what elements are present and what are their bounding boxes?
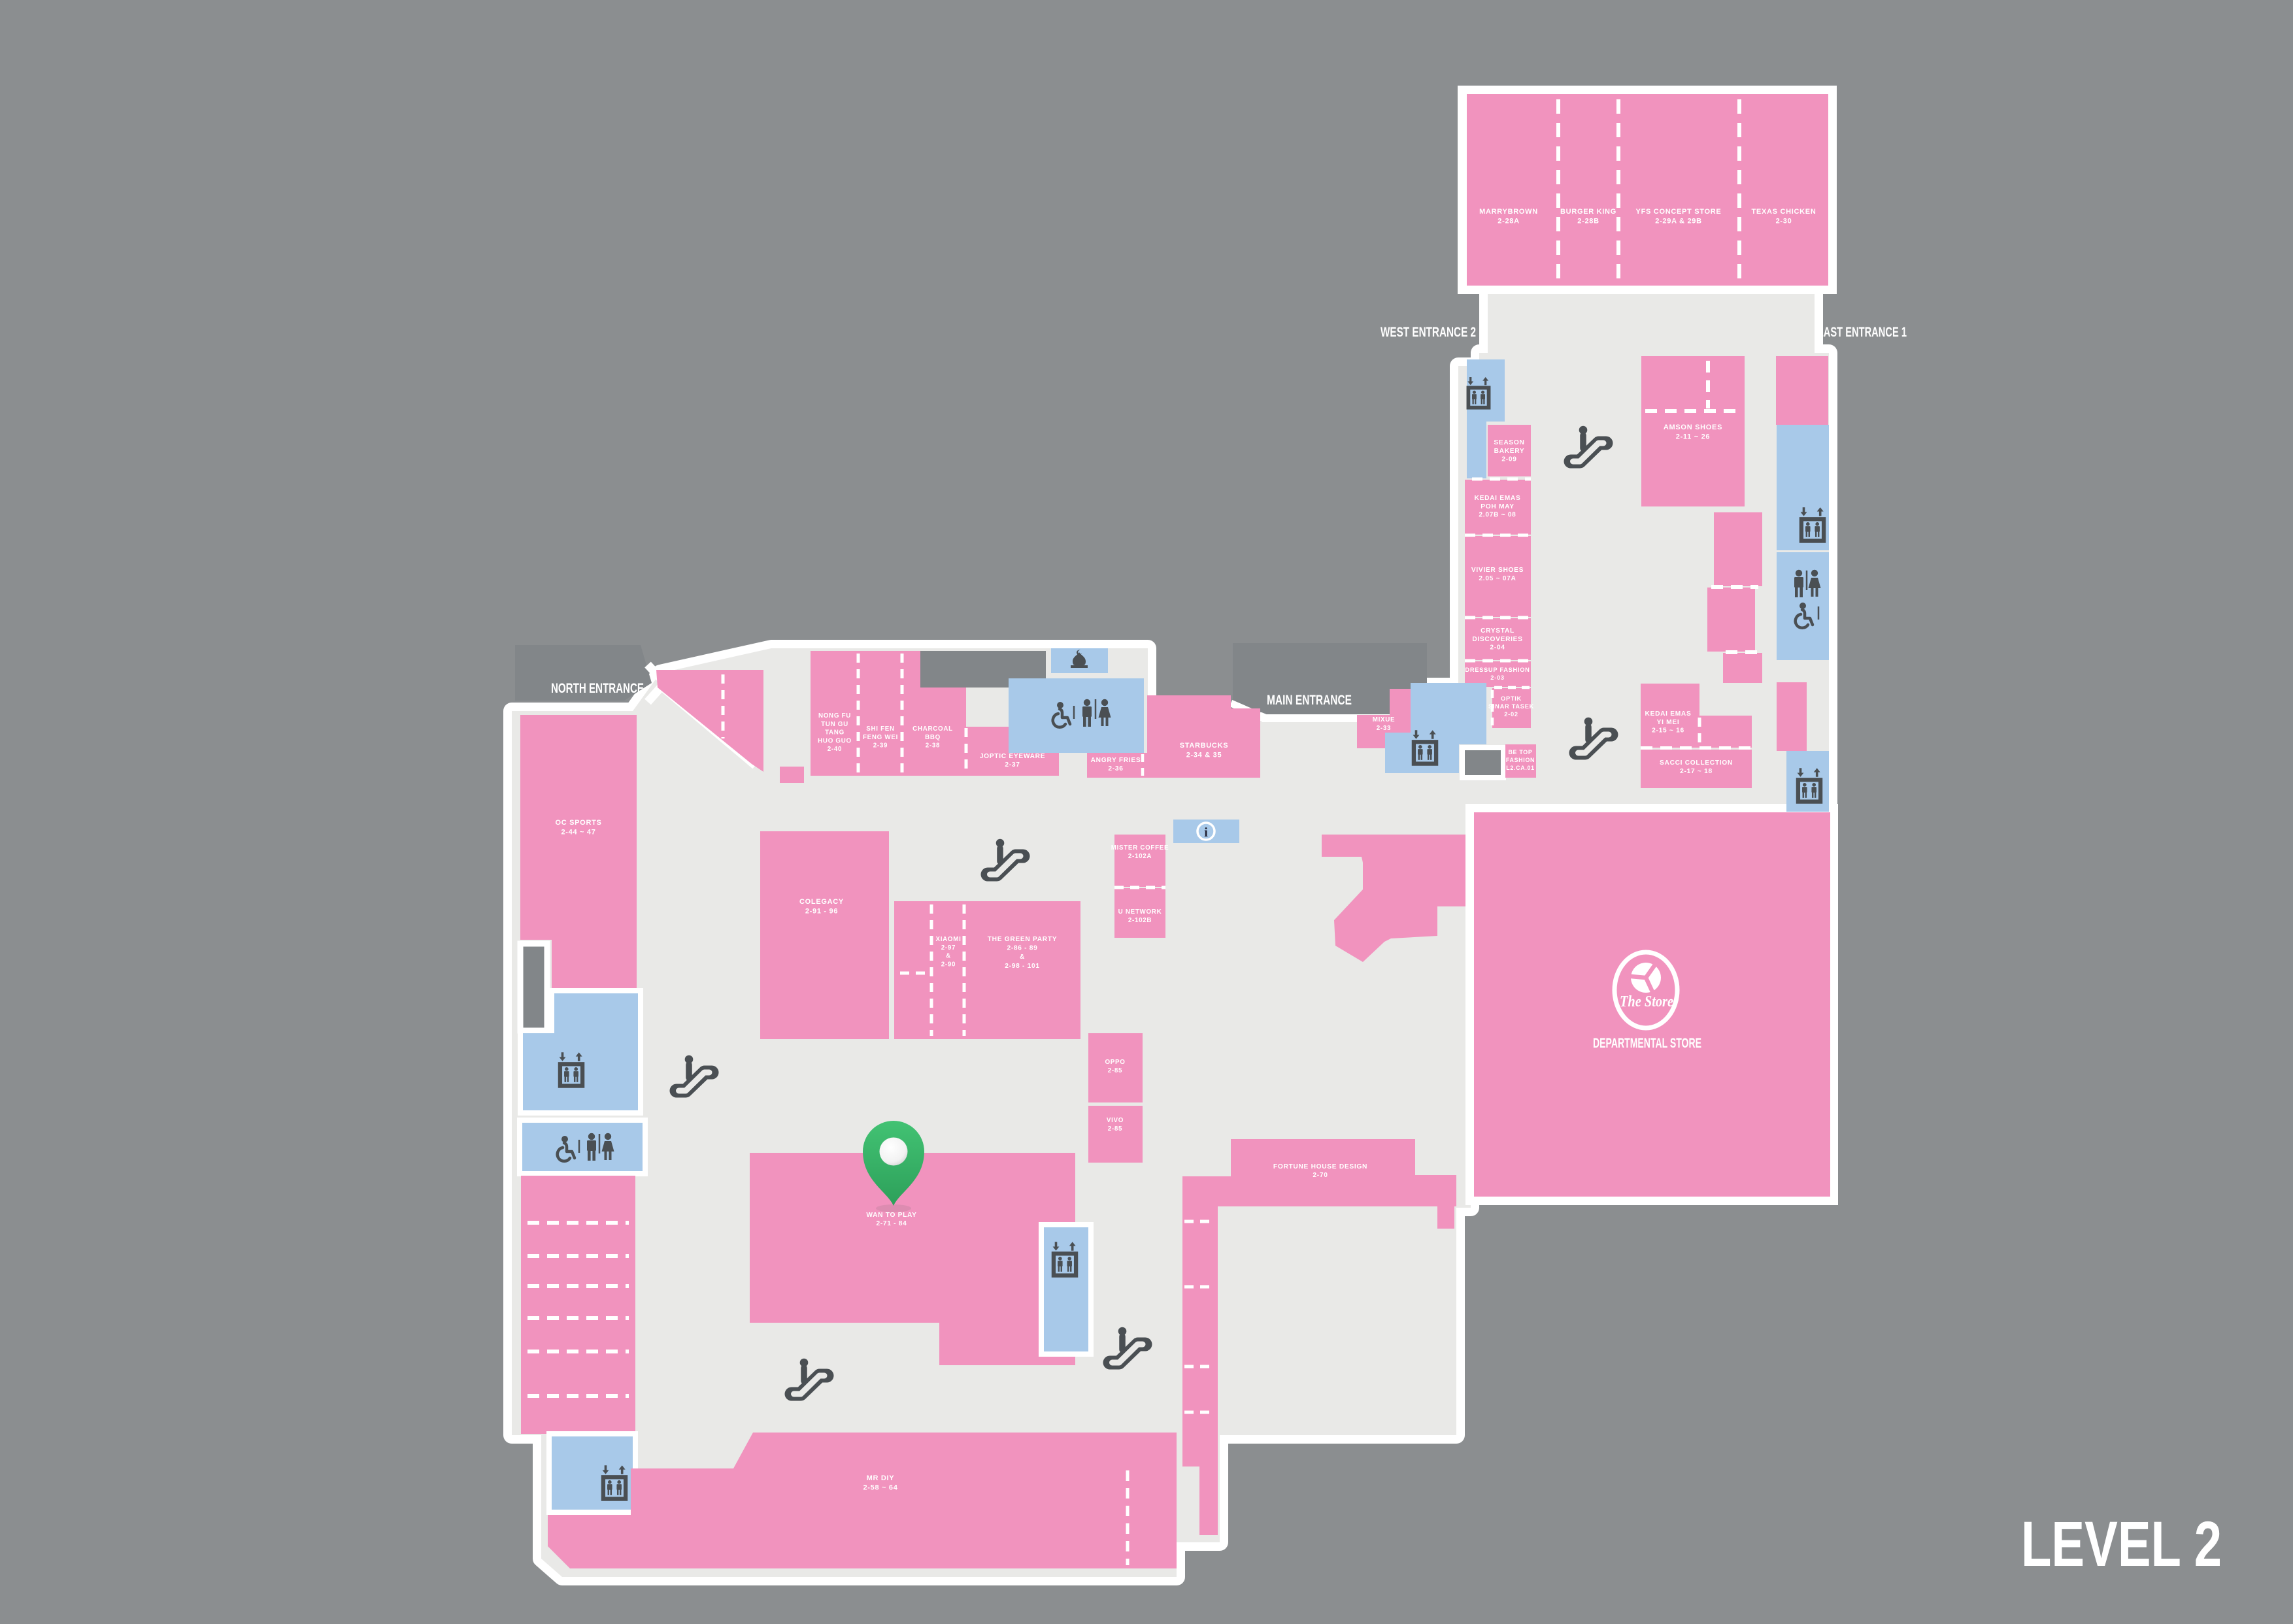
- svg-text:BE TOPFASHIONL2.CA.01: BE TOPFASHIONL2.CA.01: [1506, 749, 1535, 771]
- svg-text:VIVO2-85: VIVO2-85: [1107, 1117, 1124, 1133]
- svg-text:OPPO2-85: OPPO2-85: [1105, 1059, 1125, 1074]
- svg-text:i: i: [1204, 825, 1208, 840]
- svg-text:LEVEL 2: LEVEL 2: [2021, 1508, 2222, 1580]
- svg-text:NORTH ENTRANCE: NORTH ENTRANCE: [551, 681, 644, 696]
- svg-text:MAIN ENTRANCE: MAIN ENTRANCE: [1267, 693, 1352, 708]
- svg-text:DEPARTMENTAL STORE: DEPARTMENTAL STORE: [1593, 1036, 1701, 1051]
- svg-text:VIVIER SHOES2.05 ~ 07A: VIVIER SHOES2.05 ~ 07A: [1471, 567, 1524, 582]
- svg-text:WEST ENTRANCE 2: WEST ENTRANCE 2: [1381, 325, 1476, 340]
- svg-text:EAST ENTRANCE 1: EAST ENTRANCE 1: [1817, 325, 1907, 340]
- svg-text:The Store: The Store: [1620, 993, 1673, 1010]
- svg-text:KEDAI EMASPOH MAY2.07B ~ 08: KEDAI EMASPOH MAY2.07B ~ 08: [1475, 495, 1521, 519]
